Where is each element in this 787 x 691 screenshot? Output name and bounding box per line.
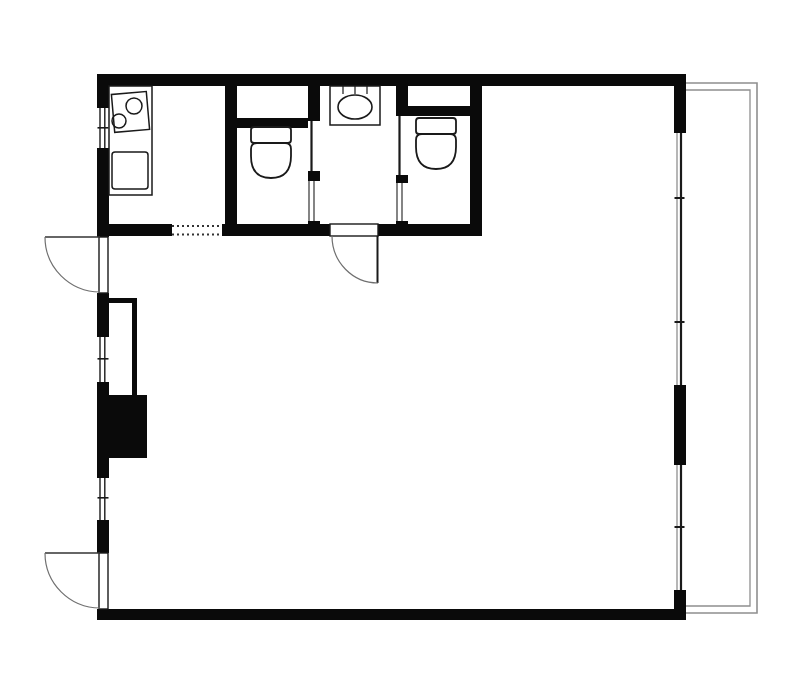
floor-plan-page [0,0,787,691]
window-left-1-tick [98,127,109,129]
wall-left-e [97,520,109,553]
terrace-door-swing-arc [45,553,100,608]
wall-toilet-a-right-stub [308,171,320,181]
wall-toilet-b-top-inner [408,106,470,116]
wall-top [97,74,686,86]
wall-band-bottom-a [97,224,172,236]
niche-wall-right [132,298,137,395]
window-right-junction-1 [675,197,685,199]
wall-kitchen-divider [225,74,237,236]
wall-left-a [97,74,109,108]
terrace-door-leaf [99,553,108,609]
wall-right-a [674,74,686,133]
balcony-inner-rail [686,90,750,606]
window-left-3-tick [98,497,109,499]
toilet-a-bowl [251,143,291,178]
wall-toilet-b-left-stub [396,175,408,183]
wall-toilet-a-right-upper [308,74,320,121]
window-right-junction-3 [675,526,685,528]
kitchen-counter [109,86,152,195]
washroom-door-frame [330,224,378,236]
niche-wall-top [103,298,137,303]
wall-right-c [674,590,686,620]
toilet-b-tank [416,118,456,134]
toilet-b-bowl [416,134,456,169]
wall-toilet-b-right [470,74,482,236]
window-left-2-tick [98,358,109,360]
balcony-outer-rail [686,83,757,613]
wall-toilet-b-left-upper [396,74,408,116]
wall-toilet-b-left-lower [396,221,408,236]
washroom-door-swing-arc [332,236,378,283]
wall-left-b [97,148,109,237]
wall-bottom [97,609,686,620]
toilet-a-tank [251,127,291,143]
entry-door-swing-arc [45,237,100,292]
wall-toilet-a-right-lower [308,221,320,236]
wall-band-bottom-c [378,224,482,236]
window-right-junction-2 [675,321,685,323]
pipe-shaft-box [102,395,147,458]
wall-right-b [674,385,686,465]
entry-door-leaf [99,237,108,293]
window-left-3-glass [97,478,109,520]
floor-plan-drawing [0,0,787,691]
